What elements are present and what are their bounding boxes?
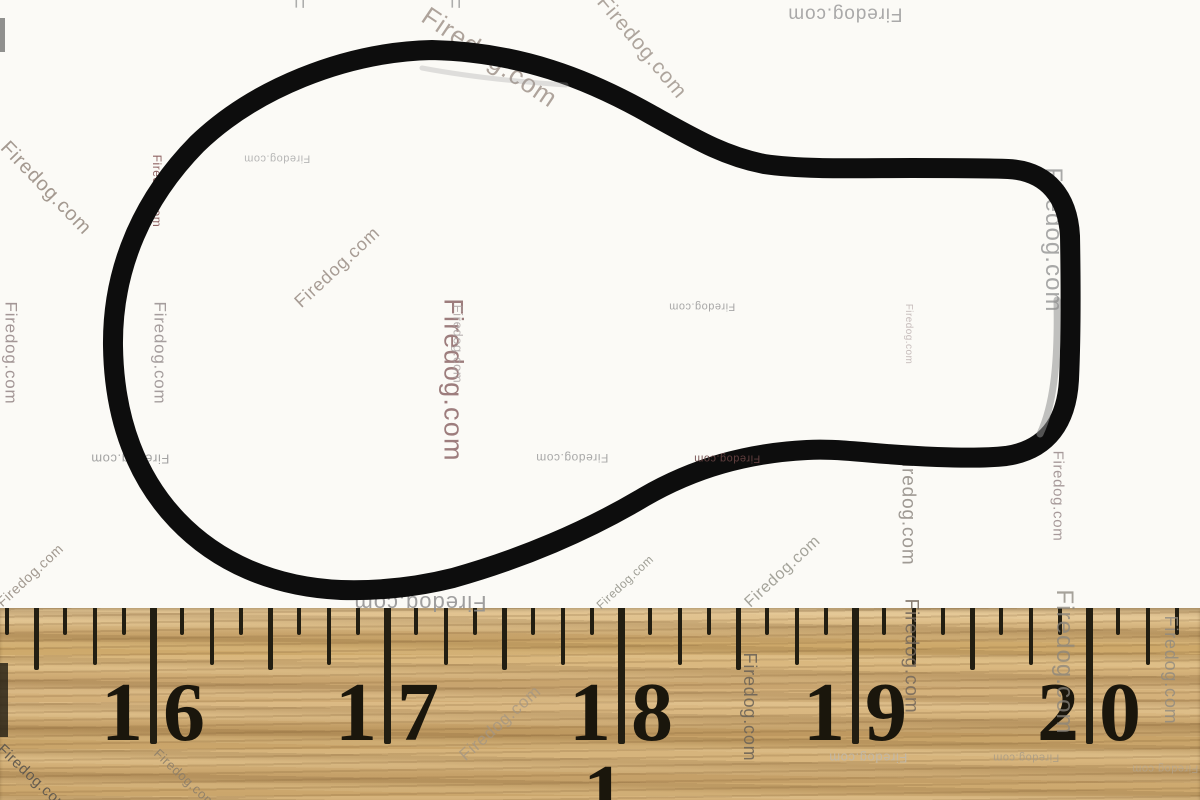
product-photo: 1617181920 1 Firedog.comFFFiredog.comFir… (0, 0, 1200, 800)
gasket-highlight-group (422, 68, 1057, 434)
gasket-outline (113, 50, 1071, 590)
gasket-photo-svg (0, 0, 1200, 800)
edge-artifact (0, 18, 5, 52)
